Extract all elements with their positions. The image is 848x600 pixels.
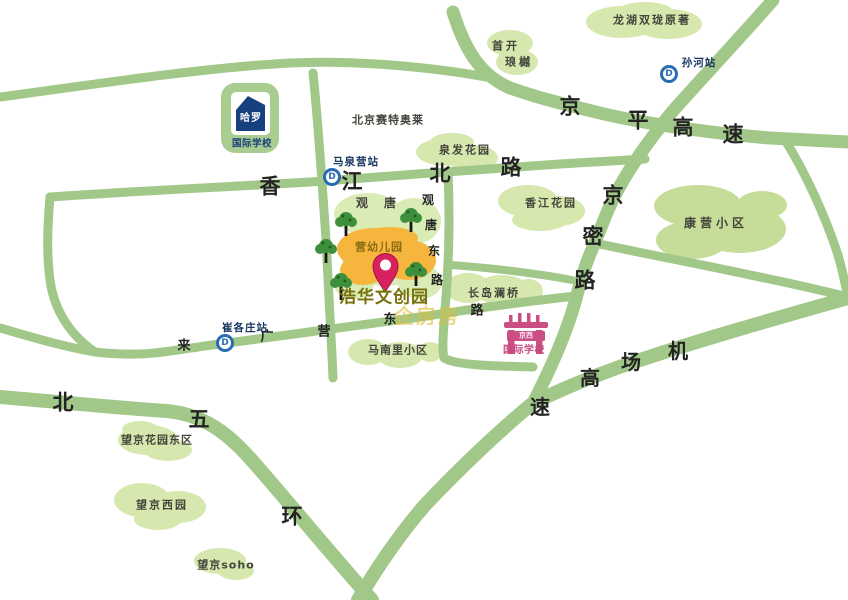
area-label-changdao-lanqiao: 长岛澜桥: [468, 288, 520, 299]
area-label-guantang-char2: 唐: [384, 197, 396, 209]
road-label-airport-expressway-2: 高: [580, 368, 600, 388]
map-labels-layer: 香江北路京平高速京密路机场高速北五环来广营东路观唐东路北京赛特奥莱龙湖双珑原著首…: [0, 0, 848, 600]
area-label-wangjing-garden-east: 望京花园东区: [121, 435, 193, 446]
road-label-jingmi-road-1: 密: [583, 227, 604, 248]
watermark: 企房房: [394, 306, 460, 326]
area-label-guantang-char1: 观: [356, 197, 368, 209]
road-label-guantang-east-road-1: 唐: [425, 219, 437, 231]
road-label-xiangjiang-north-road-1: 江: [342, 172, 363, 193]
road-label-laiguangying-east-road-1: 广: [260, 331, 273, 344]
road-label-guantang-east-road-3: 路: [431, 274, 443, 286]
road-label-laiguangying-east-road-4: 路: [470, 305, 483, 318]
location-map: 香江北路京平高速京密路机场高速北五环来广营东路观唐东路北京赛特奥莱龙湖双珑原著首…: [0, 0, 848, 600]
subway-station-icon-maquanying: D: [323, 168, 341, 186]
road-label-xiangjiang-north-road-3: 路: [501, 158, 522, 179]
road-label-jingping-expressway-1: 平: [628, 111, 649, 132]
road-label-north-fifth-ring-1: 五: [189, 410, 210, 431]
road-label-north-fifth-ring-0: 北: [53, 393, 74, 414]
station-label-maquanying: 马泉营站: [333, 157, 379, 168]
poi-label-harrow-subtitle: 国际学校: [232, 139, 272, 149]
road-label-jingping-expressway-0: 京: [560, 97, 581, 118]
poi-label-jingxi-gate-text: 京西: [519, 333, 533, 340]
road-label-airport-expressway-1: 场: [621, 352, 641, 372]
road-label-laiguangying-east-road-0: 来: [177, 340, 190, 353]
area-label-xiangjiang-garden: 香江花园: [525, 198, 577, 209]
road-label-guantang-east-road-0: 观: [422, 194, 434, 206]
road-label-xiangjiang-north-road-0: 香: [260, 177, 281, 198]
poi-label-kindergarten-label: 营幼儿园: [355, 242, 403, 253]
area-label-quanfa-garden: 泉发花园: [439, 145, 491, 156]
subway-station-icon-cuigezhuang: D: [216, 334, 234, 352]
area-label-wangjing-west-garden: 望京西园: [136, 500, 188, 511]
road-label-xiangjiang-north-road-2: 北: [430, 164, 451, 185]
area-label-wangjing-soho: 望京soho: [197, 560, 255, 571]
road-label-north-fifth-ring-2: 环: [282, 507, 303, 528]
road-label-jingmi-road-0: 京: [603, 186, 624, 207]
poi-label-jingxi-subtitle: 国际学校: [503, 346, 545, 356]
road-label-guantang-east-road-2: 东: [428, 245, 440, 257]
station-label-sunhe: 孙河站: [682, 58, 717, 69]
area-label-mananli-community: 马南里小区: [368, 345, 428, 356]
road-label-airport-expressway-3: 速: [530, 397, 550, 417]
road-label-jingping-expressway-2: 高: [673, 118, 694, 139]
area-label-longhu-shuanglong: 龙湖双珑原著: [613, 15, 691, 26]
road-label-jingping-expressway-3: 速: [723, 125, 744, 146]
subway-station-icon-sunhe: D: [660, 65, 678, 83]
road-label-laiguangying-east-road-3: 东: [383, 314, 396, 327]
area-label-kangying-community: 康营小区: [684, 217, 748, 229]
area-label-shoukai-line1: 首开: [492, 41, 520, 52]
area-label-beijing-scitech-outlets: 北京赛特奥莱: [352, 115, 424, 126]
poi-label-destination-name: 浩华文创园: [339, 290, 429, 307]
road-label-airport-expressway-0: 机: [668, 341, 688, 361]
poi-label-harrow-name: 哈罗: [240, 114, 262, 124]
road-label-jingmi-road-2: 路: [575, 271, 596, 292]
station-label-cuigezhuang: 崔各庄站: [222, 323, 268, 334]
area-label-shoukai-line2: 琅樾: [505, 57, 533, 68]
road-label-laiguangying-east-road-2: 营: [317, 326, 330, 339]
